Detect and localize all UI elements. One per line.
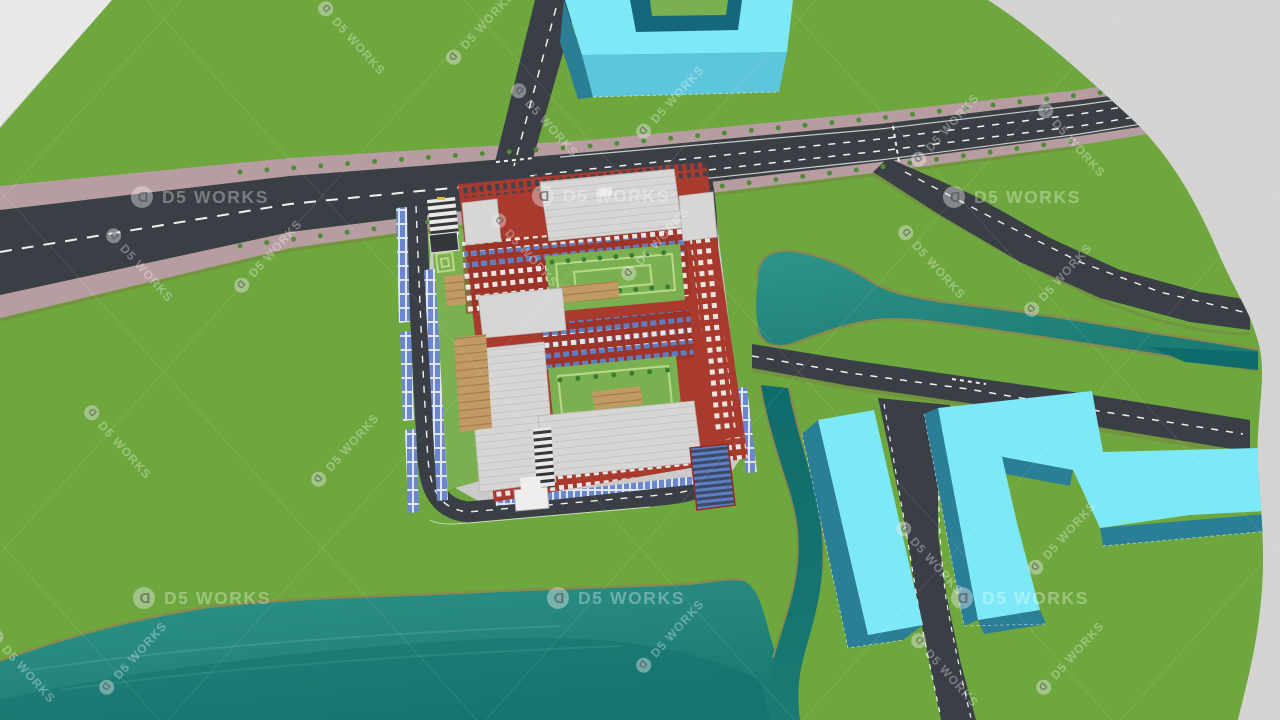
- rooftop-unit: [598, 187, 613, 196]
- main-campus-building: [458, 160, 748, 510]
- courtyard-north: [545, 244, 685, 312]
- wood-deck-2: [454, 334, 492, 432]
- scene-3d-render: [0, 0, 1280, 720]
- yellow-marking: [437, 197, 445, 200]
- mid-strip-roof: [478, 288, 566, 338]
- northeast-roof: [679, 192, 717, 241]
- massing-building-north: [560, 0, 793, 99]
- render-viewport[interactable]: DD5 WORKSDD5 WORKSDD5 WORKSDD5 WORKSDD5 …: [0, 0, 1280, 720]
- parking-canopy-dark-roof: [429, 232, 459, 253]
- north-hall-roof: [540, 169, 682, 241]
- northwest-roof: [462, 199, 501, 245]
- wood-deck-1: [444, 274, 466, 306]
- southeast-glass-block: [690, 444, 735, 510]
